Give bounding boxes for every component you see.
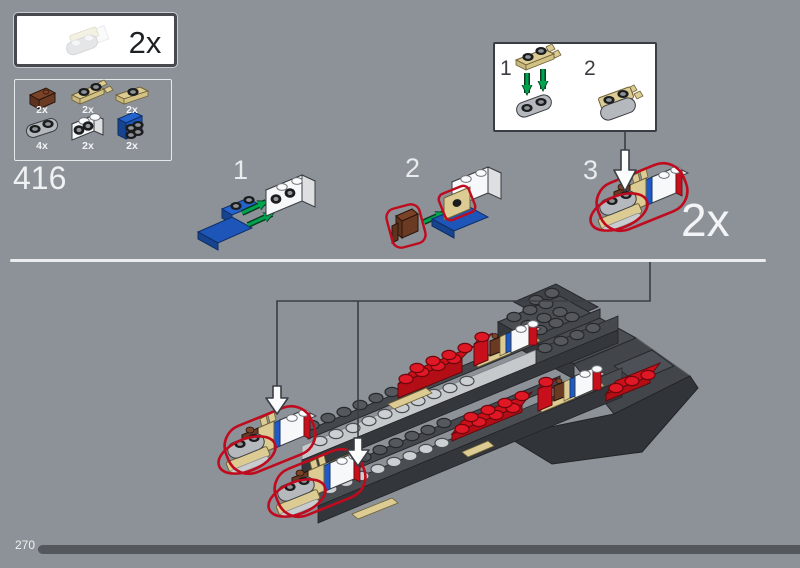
part-qty-tan-clip-plate: 2x [68, 104, 108, 116]
substep1-diagram [198, 175, 315, 250]
page-number: 270 [15, 538, 35, 552]
build-quantity-label: 2x [681, 193, 730, 247]
section-divider [10, 259, 766, 262]
inset-to-step3-arrow [614, 150, 636, 191]
substep2-diagram [384, 167, 501, 250]
progress-bar[interactable] [38, 545, 800, 554]
part-qty-blue-bracket: 2x [112, 140, 152, 152]
substep-3-number: 3 [583, 155, 598, 186]
part-qty-white-brick: 2x [68, 140, 108, 152]
step-number: 416 [13, 160, 66, 197]
substep-2-number: 2 [405, 153, 420, 184]
placement-arrow-upper [266, 386, 288, 414]
placement-arrows [266, 150, 636, 466]
instruction-page: 2x 2x 2x 2x 4x 2x 2x 416 1 2 3 1 2 2x 27… [0, 0, 800, 568]
placement-arrow-lower [347, 438, 369, 466]
inset-step-2-number: 2 [584, 57, 596, 81]
part-qty-brown-bracket: 2x [22, 104, 62, 116]
part-qty-tan-jumper: 2x [112, 104, 152, 116]
substep-1-number: 1 [233, 155, 248, 186]
substep3-diagram [585, 157, 694, 238]
main-model-illustration [213, 284, 698, 524]
assembly-quantity-label: 2x [122, 25, 168, 61]
subassembly-inset-box [493, 42, 657, 132]
part-qty-gray-rounded-plate: 4x [22, 140, 62, 152]
inset-step-1-number: 1 [500, 57, 512, 81]
